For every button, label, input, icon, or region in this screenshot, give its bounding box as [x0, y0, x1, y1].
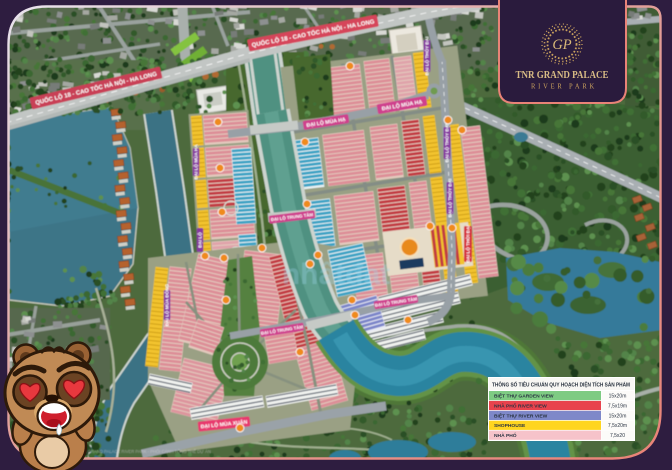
svg-text:ĐẠI LỘ MÙA HẠ: ĐẠI LỘ MÙA HẠ: [192, 144, 199, 180]
svg-text:THÔNG SỐ TIÊU CHUẨN QUY HOẠCH: THÔNG SỐ TIÊU CHUẨN QUY HOẠCH DIỆN TÍCH …: [492, 381, 630, 389]
svg-text:RIVER PARK: RIVER PARK: [531, 83, 597, 91]
svg-text:7,5x20m: 7,5x20m: [608, 423, 627, 429]
svg-text:ĐẠI LỘ THỜI ĐẠI: ĐẠI LỘ THỜI ĐẠI: [464, 225, 471, 262]
svg-text:7,5x19m: 7,5x19m: [608, 403, 627, 409]
svg-text:ĐẠI LỘ THỎY ĐẠI: ĐẠI LỘ THỎY ĐẠI: [443, 124, 450, 163]
svg-text:15x20m: 15x20m: [609, 394, 627, 400]
svg-text:ĐẠI LỘ THỎY ĐẠI: ĐẠI LỘ THỎY ĐẠI: [423, 37, 430, 76]
svg-text:SHOPHOUSE: SHOPHOUSE: [494, 423, 526, 429]
svg-text:nhấtđạt: nhấtđạt: [282, 258, 390, 291]
svg-text:GP: GP: [552, 37, 571, 53]
svg-text:15x20m: 15x20m: [609, 413, 627, 419]
svg-text:ĐẠI LỘ MÙA ĐÔNG: ĐẠI LỘ MÙA ĐÔNG: [163, 283, 170, 326]
svg-text:TNR GRAND PALACE: TNR GRAND PALACE: [516, 70, 609, 81]
svg-text:NHÀ PHỐ: NHÀ PHỐ: [494, 432, 517, 439]
svg-text:ĐẠI LỘ THỎY ĐẠI: ĐẠI LỘ THỎY ĐẠI: [446, 179, 453, 218]
svg-text:TNR GRAND PALACE RIVER PARK -: TNR GRAND PALACE RIVER PARK - PHỐI CẢNH …: [78, 449, 211, 454]
svg-text:NHÀ PHỐ RIVER VIEW: NHÀ PHỐ RIVER VIEW: [494, 402, 547, 409]
svg-text:ĐẠI LỘ: ĐẠI LỘ: [196, 232, 203, 248]
svg-text:7,5x20: 7,5x20: [610, 433, 625, 439]
